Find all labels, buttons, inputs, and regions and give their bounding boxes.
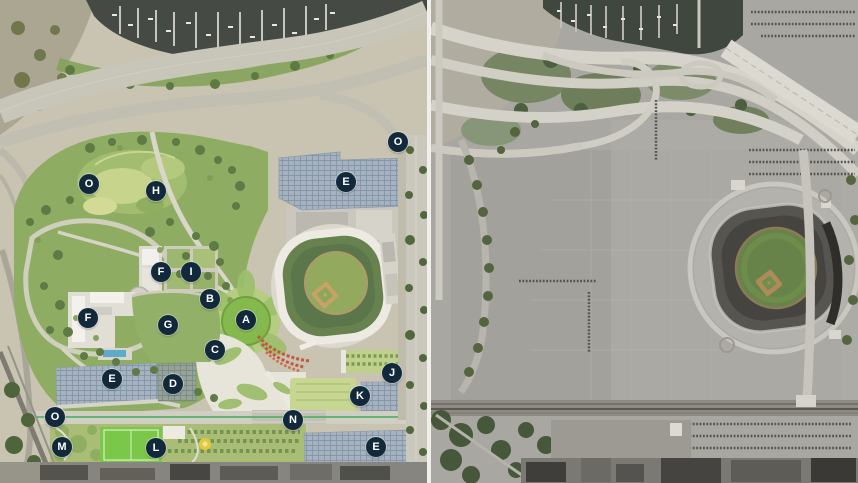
site-plan-rendering: [0, 0, 427, 483]
comparison-image: OHEOFIBFGACEDJKNOMLE: [0, 0, 858, 483]
satellite-photo: [431, 0, 858, 483]
proposed-plan-panel: OHEOFIBFGACEDJKNOMLE: [0, 0, 427, 483]
existing-aerial-panel: [431, 0, 858, 483]
